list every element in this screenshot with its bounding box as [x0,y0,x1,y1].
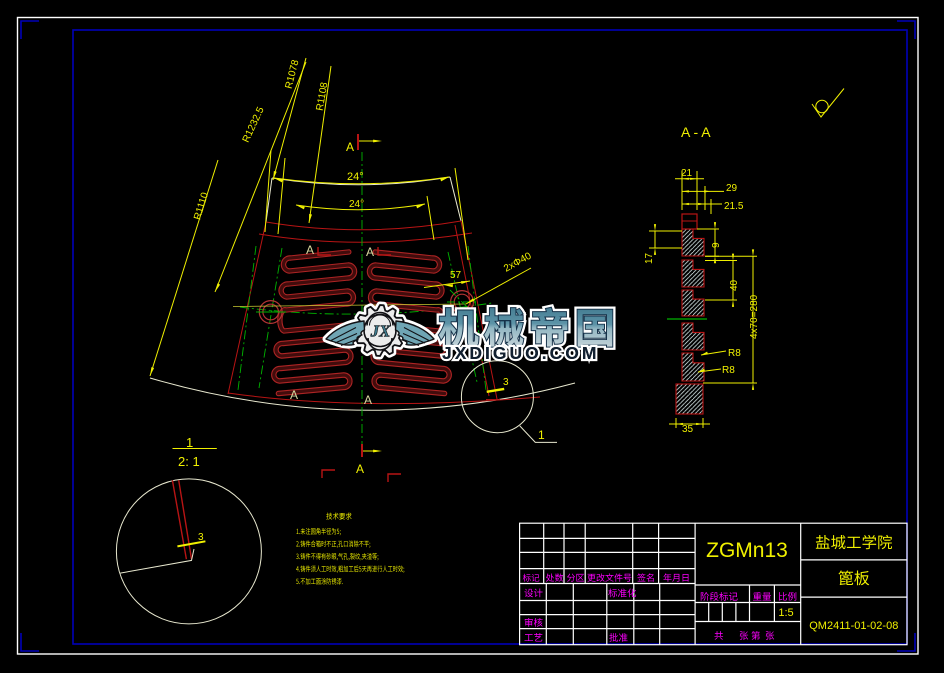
svg-text:57: 57 [450,270,462,281]
svg-text:A: A [366,245,374,259]
svg-text:A: A [306,243,314,257]
svg-text:29: 29 [726,183,738,194]
svg-text:R8: R8 [728,348,741,359]
svg-text:1: 1 [186,435,193,450]
svg-text:ZGMn13: ZGMn13 [706,539,788,562]
svg-text:24°: 24° [347,171,364,183]
svg-text:21: 21 [681,168,693,179]
svg-text:3: 3 [503,377,509,388]
svg-text:3: 3 [198,532,204,543]
svg-text:QM2411-01-02-08: QM2411-01-02-08 [809,620,898,632]
svg-text:1: 1 [538,428,545,442]
svg-text:4x70=280: 4x70=280 [749,294,760,339]
svg-text:A: A [356,462,364,476]
svg-text:21.5: 21.5 [724,201,744,212]
svg-text:9: 9 [711,242,722,248]
svg-text:35: 35 [682,424,694,435]
svg-text:A: A [346,140,354,154]
svg-text:A: A [290,388,298,402]
svg-text:JX: JX [370,322,392,341]
svg-text:R8: R8 [722,365,735,376]
svg-text:A - A: A - A [681,124,711,140]
svg-text:17: 17 [644,252,655,264]
svg-text:2: 1: 2: 1 [178,454,200,469]
svg-text:1:5: 1:5 [778,607,793,619]
svg-text:40: 40 [729,279,740,291]
svg-text:24°: 24° [349,199,364,210]
svg-text:JXDIGUO.COM: JXDIGUO.COM [442,343,599,363]
svg-text:A: A [364,393,372,407]
